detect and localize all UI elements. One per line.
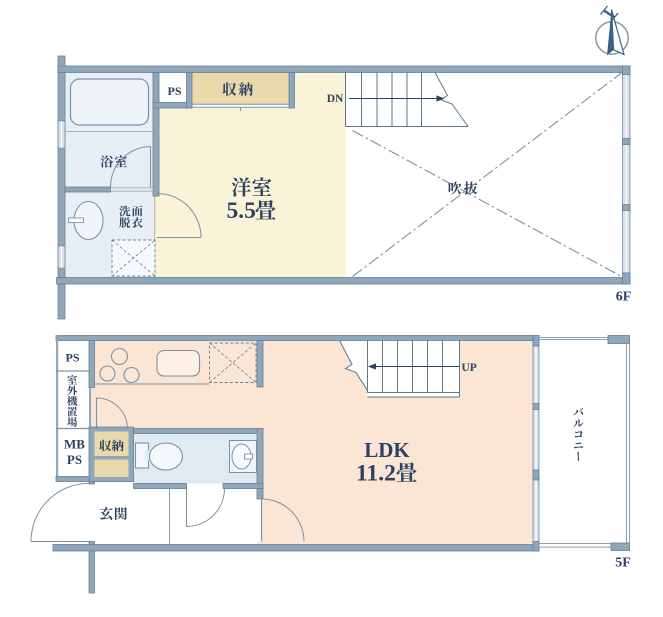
svg-text:DN: DN (327, 93, 344, 105)
svg-text:5.5: 5.5 (227, 198, 256, 224)
svg-text:6F: 6F (616, 290, 632, 305)
svg-text:UP: UP (462, 362, 477, 374)
svg-text:5F: 5F (615, 556, 631, 571)
svg-text:PS: PS (65, 351, 79, 365)
svg-text:11.2: 11.2 (356, 461, 396, 487)
svg-text:PS: PS (167, 84, 181, 98)
svg-text:MB: MB (64, 437, 85, 452)
svg-text:LDK: LDK (364, 438, 410, 462)
svg-text:PS: PS (67, 452, 82, 467)
